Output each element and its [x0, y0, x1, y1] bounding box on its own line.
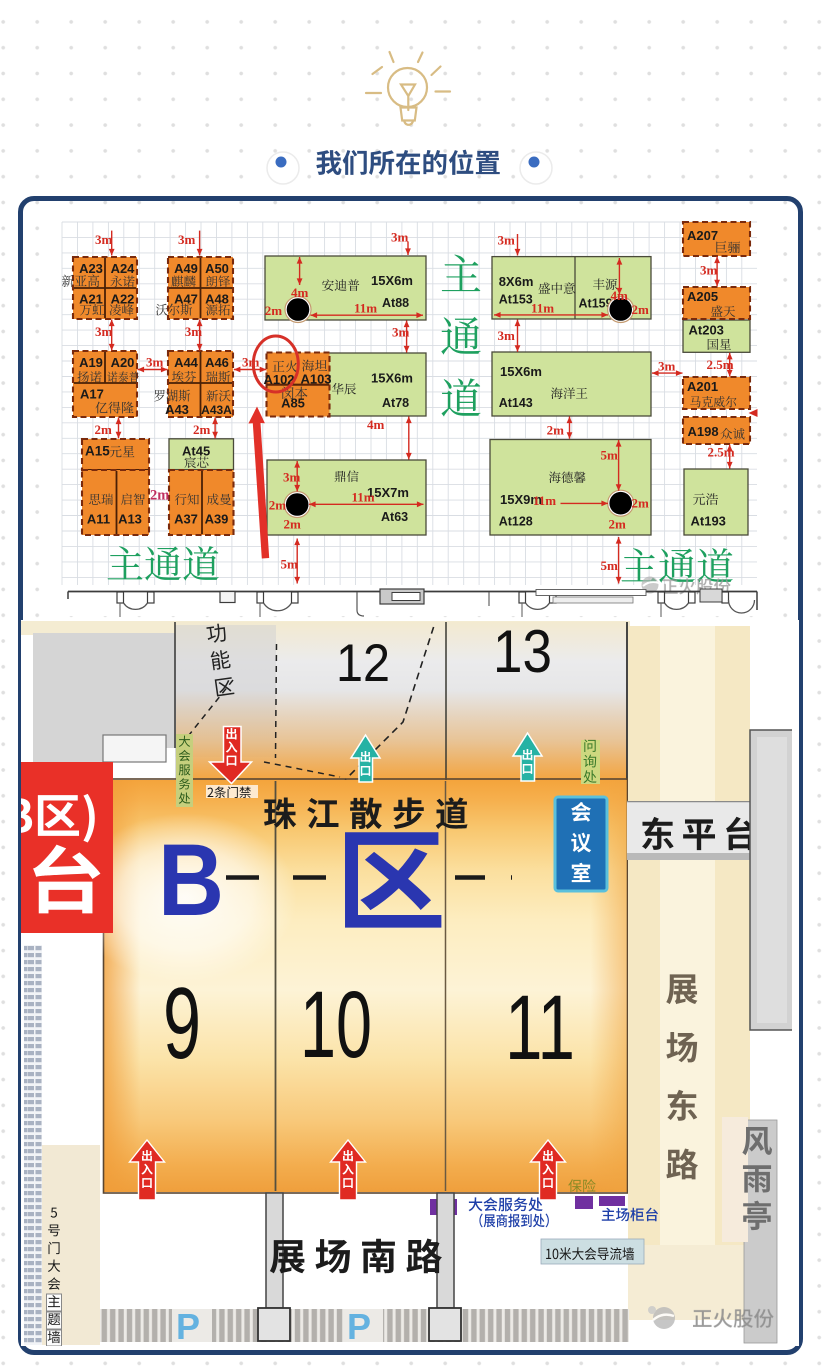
- svg-text:10: 10: [300, 972, 372, 1078]
- svg-text:5m: 5m: [281, 557, 299, 572]
- svg-text:2m: 2m: [632, 302, 650, 317]
- svg-text:A48: A48: [205, 292, 229, 307]
- svg-text:A46: A46: [205, 355, 229, 370]
- svg-text:11m: 11m: [531, 301, 554, 316]
- svg-text:11m: 11m: [533, 493, 556, 508]
- svg-text:3m: 3m: [700, 263, 718, 278]
- svg-text:3m: 3m: [498, 233, 516, 248]
- svg-text:A19: A19: [79, 355, 103, 370]
- svg-text:A44: A44: [174, 355, 199, 370]
- svg-text:A85: A85: [281, 396, 305, 411]
- svg-text:3m: 3m: [658, 359, 676, 374]
- svg-text:2m: 2m: [609, 517, 627, 532]
- svg-text:2m: 2m: [284, 517, 302, 532]
- svg-text:3m: 3m: [95, 324, 113, 339]
- svg-text:B: B: [158, 823, 224, 937]
- svg-text:8X6m: 8X6m: [499, 274, 534, 289]
- svg-text:A47: A47: [174, 292, 198, 307]
- svg-text:15X6m: 15X6m: [371, 371, 413, 386]
- svg-text:A22: A22: [111, 292, 135, 307]
- svg-text:A21: A21: [79, 292, 103, 307]
- svg-text:13: 13: [493, 620, 552, 685]
- svg-text:At128: At128: [499, 515, 533, 529]
- svg-text:At153: At153: [499, 293, 533, 307]
- svg-text:A23: A23: [79, 261, 103, 276]
- svg-text:11: 11: [505, 977, 575, 1079]
- svg-text:11m: 11m: [354, 301, 377, 316]
- svg-text:At193: At193: [691, 514, 726, 529]
- svg-text:At63: At63: [381, 510, 408, 524]
- svg-text:3m: 3m: [242, 355, 260, 370]
- svg-text:12: 12: [336, 634, 390, 693]
- svg-text:A201: A201: [687, 379, 718, 394]
- svg-text:P: P: [176, 1306, 200, 1346]
- svg-text:A205: A205: [687, 289, 718, 304]
- svg-text:A198: A198: [688, 424, 719, 439]
- svg-text:At203: At203: [689, 323, 724, 338]
- svg-text:A43A: A43A: [201, 403, 232, 417]
- svg-text:5m: 5m: [601, 448, 619, 463]
- svg-text:5m: 5m: [601, 558, 619, 573]
- svg-text:15X6m: 15X6m: [371, 273, 413, 288]
- svg-text:A39: A39: [205, 512, 229, 527]
- svg-text:A43: A43: [165, 402, 189, 417]
- svg-text:A11: A11: [87, 512, 110, 527]
- svg-text:3m: 3m: [178, 232, 196, 247]
- svg-text:4m: 4m: [291, 285, 309, 300]
- svg-text:11m: 11m: [352, 490, 375, 505]
- svg-text:3m: 3m: [146, 355, 164, 370]
- svg-text:2m: 2m: [547, 423, 565, 438]
- svg-text:A207: A207: [687, 228, 718, 243]
- svg-text:2m: 2m: [150, 488, 169, 504]
- svg-text:2m: 2m: [193, 422, 211, 437]
- svg-text:A13: A13: [118, 512, 142, 527]
- svg-text:A37: A37: [174, 512, 198, 527]
- svg-text:A15: A15: [85, 444, 110, 459]
- svg-text:At78: At78: [382, 396, 409, 410]
- svg-text:3m: 3m: [498, 328, 516, 343]
- svg-text:2m: 2m: [269, 498, 287, 513]
- svg-text:A49: A49: [174, 261, 198, 276]
- svg-text:At143: At143: [499, 396, 533, 410]
- svg-text:At45: At45: [182, 444, 210, 459]
- svg-text:3m: 3m: [95, 232, 113, 247]
- svg-text:A24: A24: [111, 261, 136, 276]
- svg-text:A103: A103: [300, 372, 331, 387]
- svg-text:2m: 2m: [265, 303, 283, 318]
- svg-text:A17: A17: [80, 387, 104, 402]
- svg-text:3m: 3m: [391, 230, 409, 245]
- svg-text:4m: 4m: [367, 417, 385, 432]
- svg-text:2m: 2m: [632, 496, 650, 511]
- svg-text:A50: A50: [205, 261, 229, 276]
- svg-text:P: P: [347, 1306, 371, 1346]
- svg-text:15X6m: 15X6m: [500, 364, 542, 379]
- svg-text:A20: A20: [111, 355, 135, 370]
- svg-text:9: 9: [163, 968, 201, 1080]
- svg-text:2m: 2m: [95, 422, 113, 437]
- svg-text:At88: At88: [382, 296, 409, 310]
